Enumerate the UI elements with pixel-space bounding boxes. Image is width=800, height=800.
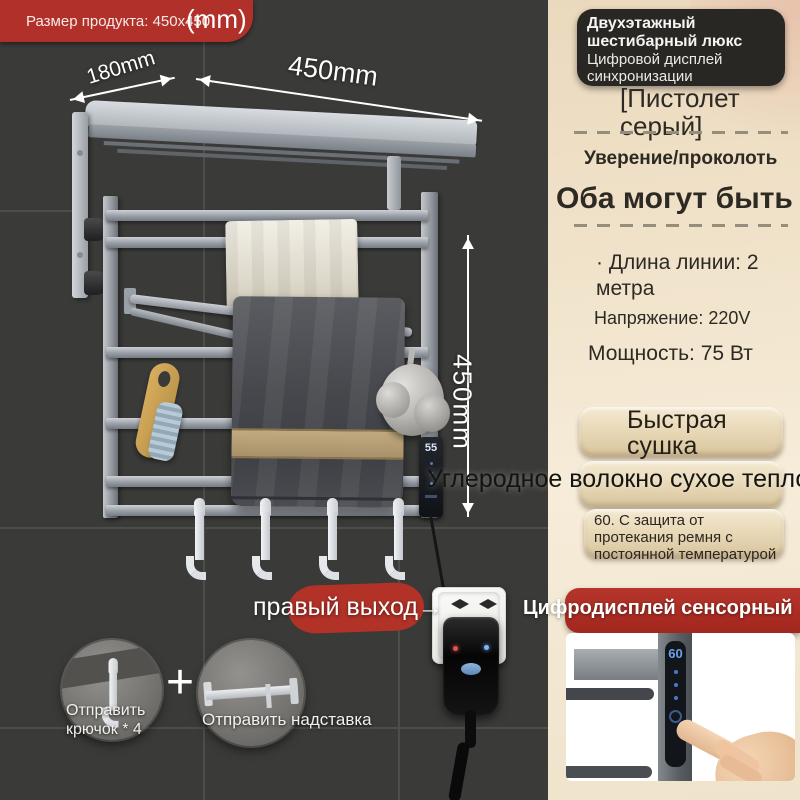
height-dimension-label: 450mm	[447, 353, 478, 453]
bottom-hook-3	[317, 498, 343, 590]
divider-1	[574, 131, 788, 134]
hook-stem	[195, 512, 204, 560]
socket-slot-4	[488, 599, 502, 609]
loofah-lobe-1	[376, 382, 410, 418]
fast-dry-label: Быстрая сушка	[579, 407, 757, 459]
bottom-hook-1	[184, 498, 210, 590]
rack-bar-1	[106, 210, 428, 221]
inset-bar	[206, 685, 298, 700]
rack-display-value: 55	[419, 437, 443, 454]
size-badge: Размер продукта: 450x450 (mm)	[0, 0, 253, 42]
hook-curve	[186, 556, 206, 580]
touch-banner-label: Цифродисплей сенсорный	[523, 597, 793, 620]
touch-icon-3	[674, 696, 678, 700]
bar-inset-circle	[198, 640, 304, 746]
plug-red-led	[453, 646, 458, 651]
socket-slot-1	[446, 599, 460, 609]
both-line: Оба могут быть	[556, 182, 793, 216]
hook-stem	[394, 512, 403, 560]
spec-power: Мощность: 75 Вт	[588, 342, 753, 366]
spec-cord-length: · Длина линии: 2 метра	[596, 250, 778, 303]
depth-dimension-arrow	[70, 77, 175, 101]
bottom-hook-2	[250, 498, 276, 590]
socket-slot-3	[474, 599, 488, 609]
touch-display-photo: 60	[566, 633, 795, 781]
header-subtitle: Цифровой дисплей синхронизации	[587, 52, 775, 86]
info-panel: Двухэтажный шестибарный люкс Цифровой ди…	[548, 0, 800, 800]
socket-slot-2	[460, 599, 474, 609]
left-wall-bracket	[72, 112, 88, 298]
plus-sign: +	[166, 655, 194, 710]
header-title: Двухэтажный шестибарный люкс	[587, 15, 775, 50]
size-badge-unit: (mm)	[186, 4, 247, 35]
hook-stem	[328, 512, 337, 560]
loofah	[380, 352, 446, 444]
width-dimension-label: 450mm	[286, 50, 379, 92]
power-cord-lower-2	[448, 741, 470, 800]
touch-display-value: 60	[665, 641, 686, 661]
size-badge-text: Размер продукта: 450x450	[26, 13, 210, 30]
hook-curve	[252, 556, 272, 580]
protection-label: 60. С защита от протекания ремня с посто…	[584, 509, 784, 564]
loofah-lobe-2	[414, 394, 450, 432]
fast-dry-button: Быстрая сушка	[579, 407, 783, 456]
touch-icon-1	[674, 670, 678, 674]
bar-inset-label: Отправить надставка	[202, 710, 372, 730]
bracket-screw-2	[77, 252, 83, 258]
assurance-line: Уверение/проколоть	[584, 148, 777, 170]
brush	[132, 360, 198, 467]
power-cord-lower-1	[465, 710, 476, 748]
bracket-screw-1	[77, 150, 83, 156]
right-wall-bracket	[387, 156, 401, 210]
divider-2	[574, 224, 788, 227]
hook-curve	[319, 556, 339, 580]
protection-box: 60. С защита от протекания ремня с посто…	[584, 509, 784, 557]
touch-icon-2	[674, 683, 678, 687]
hook-inset-label: Отправить крючок * 4	[66, 702, 166, 740]
bottom-hook-4	[383, 498, 409, 590]
carbon-heat-line: Углеродное волокно сухое тепло	[427, 465, 800, 494]
hook-curve	[385, 556, 405, 580]
product-infographic: Размер продукта: 450x450 (mm)	[0, 0, 800, 800]
header-box: Двухэтажный шестибарный люкс Цифровой ди…	[577, 9, 785, 86]
photo-bar-low	[566, 766, 652, 778]
inset-bar-right-cap	[289, 678, 299, 704]
outlet-note-text: правый выход→	[253, 593, 443, 622]
wall-grout-horizontal-1	[0, 210, 74, 212]
photo-bar-mid	[566, 688, 654, 700]
power-plug	[443, 617, 499, 715]
spec-voltage: Напряжение: 220V	[594, 308, 750, 329]
plug-blue-button	[461, 663, 481, 675]
hook-stem	[261, 512, 270, 560]
towel-stripe	[231, 428, 403, 460]
plug-blue-led	[484, 645, 489, 650]
rack-display-bar	[425, 495, 437, 498]
touch-control-strip: 60	[665, 641, 686, 767]
brush-hook-icon	[142, 281, 158, 338]
